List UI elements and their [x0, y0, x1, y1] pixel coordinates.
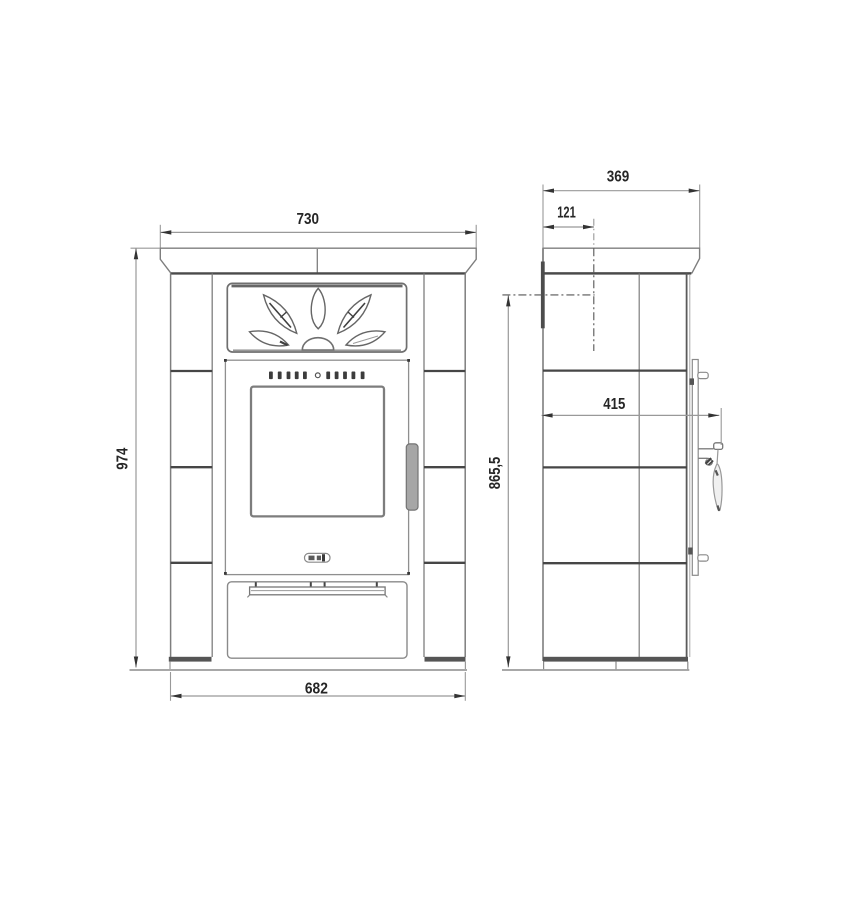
svg-text:415: 415 [603, 396, 625, 413]
svg-text:974: 974 [114, 448, 131, 470]
svg-text:369: 369 [607, 169, 630, 186]
svg-text:682: 682 [305, 680, 328, 697]
svg-text:730: 730 [297, 211, 320, 228]
svg-text:865,5: 865,5 [487, 457, 504, 490]
svg-text:121: 121 [557, 205, 576, 222]
